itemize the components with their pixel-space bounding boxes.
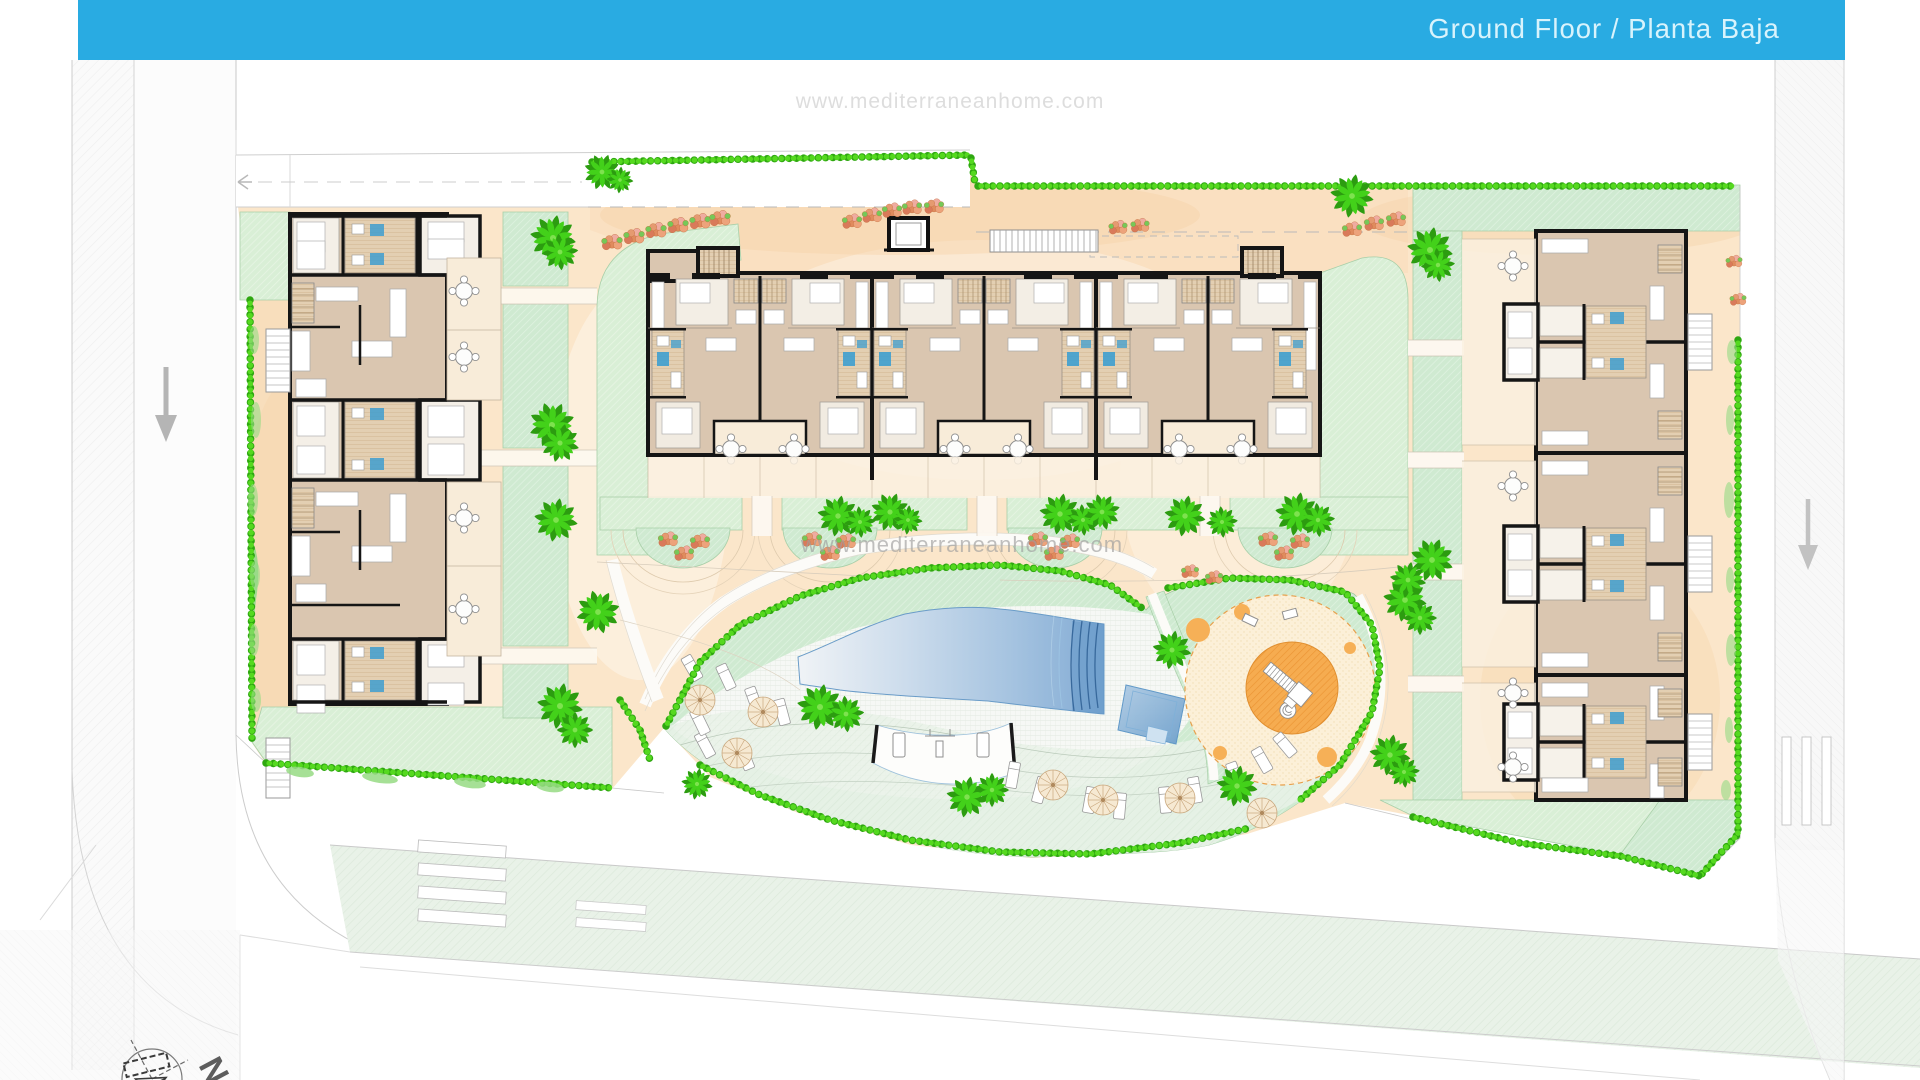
svg-text:www.mediterraneanhome.com: www.mediterraneanhome.com: [800, 532, 1123, 557]
svg-text:www.mediterraneanhome.com: www.mediterraneanhome.com: [795, 90, 1105, 113]
svg-text:Ground Floor / Planta Baja: Ground Floor / Planta Baja: [1428, 13, 1780, 44]
